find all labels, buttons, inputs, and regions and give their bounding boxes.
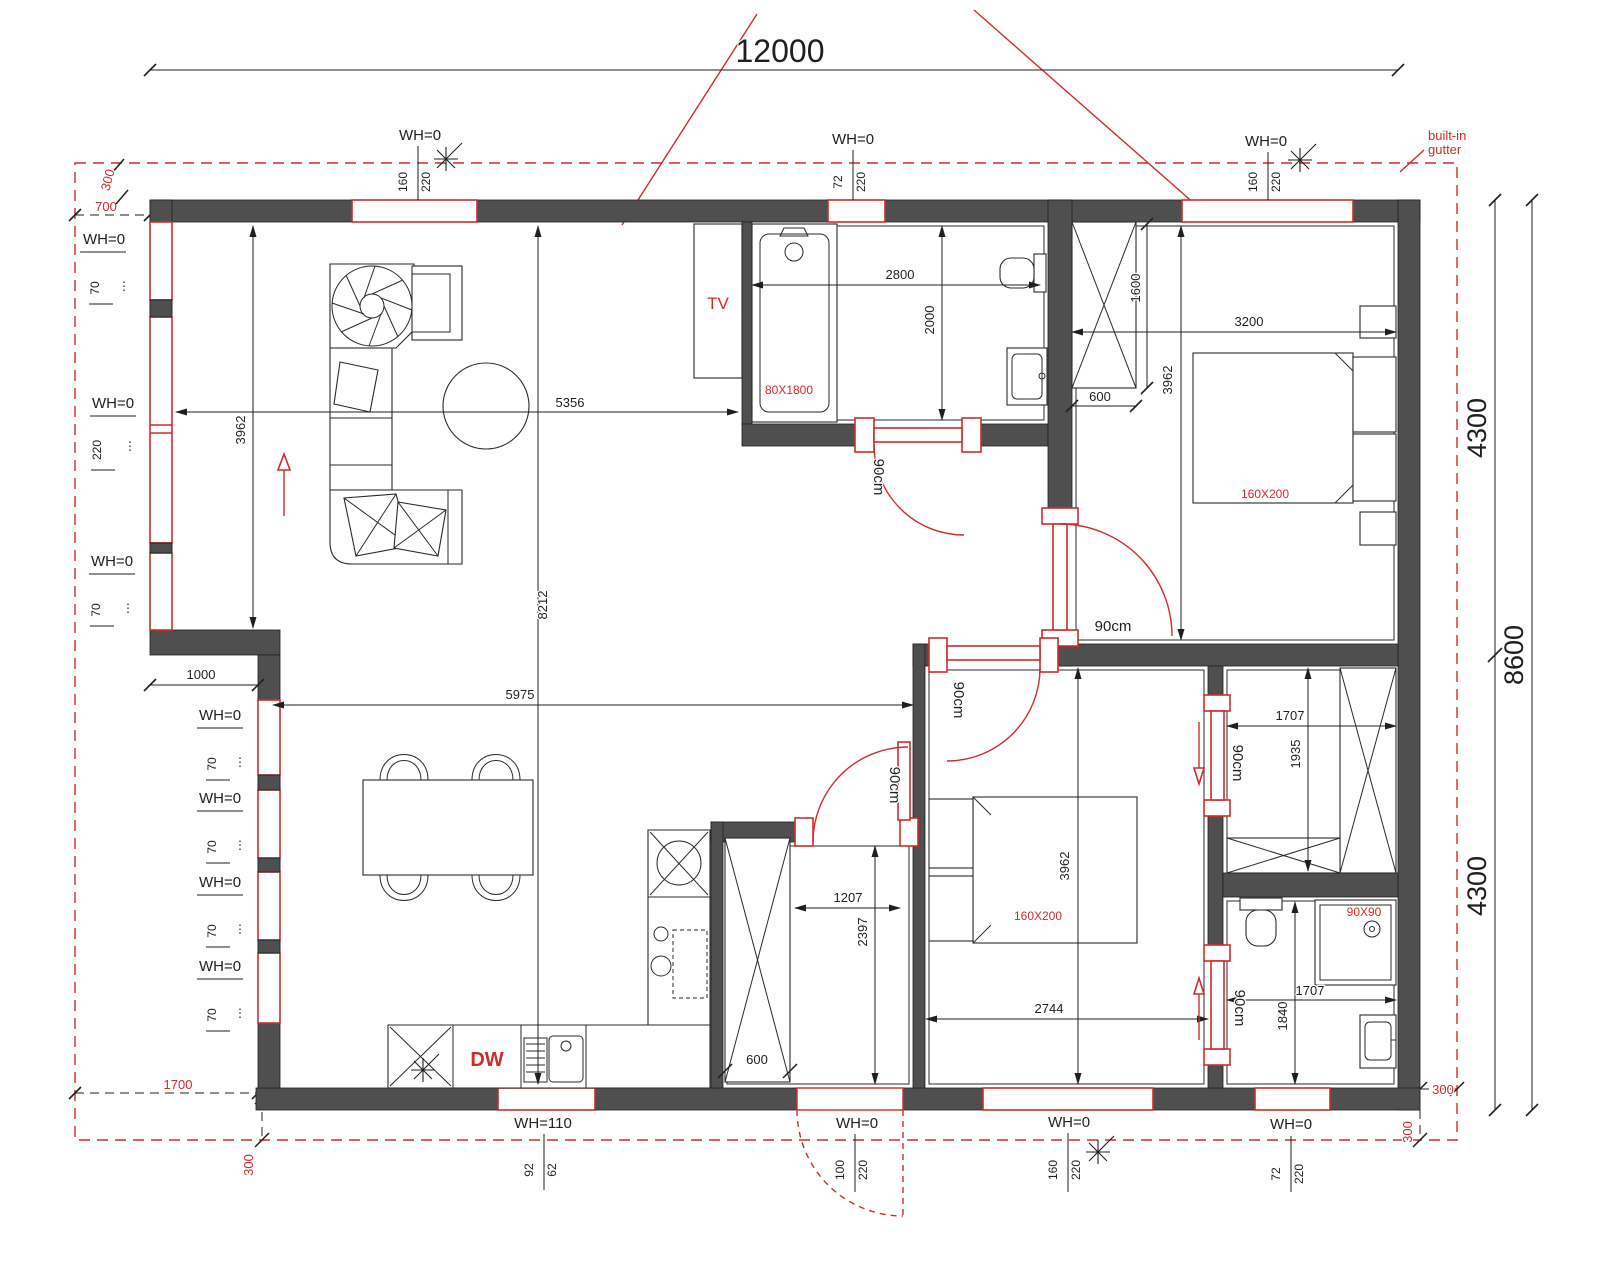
ellipsis-icon: ⋮: [234, 838, 246, 852]
window-left-u2-id: WH=0: [92, 395, 134, 412]
dishwasher-label: DW: [470, 1049, 503, 1071]
window-left-u2-size: 220: [90, 440, 104, 460]
window-bottom-3-size1: 160: [1046, 1160, 1060, 1180]
sun-icon: [1288, 144, 1316, 172]
ellipsis-icon: ⋮: [124, 439, 136, 453]
shower: 90X90: [1315, 900, 1396, 985]
dim-dining-width: 5975: [506, 687, 535, 702]
sliding-door-bathroom2-label: 90cm: [1231, 990, 1248, 1027]
bed-2: 160X200: [929, 797, 1137, 943]
window-label-left-l4: WH=0 70 ⋮: [197, 958, 246, 1031]
door-bedroom1-label: 90cm: [1095, 618, 1132, 635]
dim-bath1-height: 2000: [922, 306, 937, 335]
tv-label: TV: [707, 294, 729, 313]
dim-step-offset: 1000: [187, 667, 216, 682]
wall-sliding-seg1: [1208, 666, 1223, 695]
wall-sliding-seg3: [1208, 1063, 1223, 1088]
sofa: [330, 348, 462, 564]
window-top-1: [352, 200, 477, 222]
window-top-1-size1: 160: [396, 172, 410, 192]
window-left-l2-id: WH=0: [199, 790, 241, 807]
window-top-3-size2: 220: [1269, 172, 1283, 192]
window-left-u3-size: 70: [89, 603, 103, 617]
window-left-l1-id: WH=0: [199, 707, 241, 724]
gutter-note-line1: built-in: [1428, 128, 1466, 143]
window-label-left-l2: WH=0 70 ⋮: [197, 790, 246, 863]
toilet-2: [1240, 898, 1282, 946]
sink-1: [1007, 348, 1047, 405]
sliding-door-closet: 90cm: [1194, 695, 1246, 816]
window-left-u1-size: 70: [88, 281, 102, 295]
door-bathroom1-label: 90cm: [870, 459, 887, 496]
sliding-door-bathroom2: 90cm: [1194, 945, 1248, 1065]
sink-2: [1360, 1015, 1396, 1068]
window-left-l3-id: WH=0: [199, 874, 241, 891]
window-left-u3: [150, 553, 172, 630]
closet-wardrobes: [1227, 668, 1396, 873]
window-label-top-3: WH=0 160 220: [1245, 133, 1316, 200]
bed-1: 160X200: [1193, 306, 1396, 545]
window-bottom-1: [498, 1088, 595, 1110]
ellipsis-icon: ⋮: [118, 279, 130, 293]
window-bottom-1-size2: 62: [545, 1163, 559, 1177]
window-top-3: [1182, 200, 1353, 222]
bathtub-label: 80X1800: [765, 383, 813, 397]
window-label-bottom-4: WH=0 72 220: [1269, 1116, 1312, 1192]
door-bathroom1: 90cm: [855, 418, 981, 535]
window-bottom-2: [983, 1088, 1153, 1110]
bathtub: 80X1800: [752, 224, 837, 422]
window-bottom-2-size2: 220: [856, 1160, 870, 1180]
ellipsis-icon: ⋮: [234, 922, 246, 936]
ellipsis-icon: ⋮: [122, 601, 134, 615]
spiral-stair: [330, 264, 414, 348]
entry-door: [797, 1088, 903, 1216]
wall-step: [150, 630, 280, 655]
sun-icon: [434, 143, 462, 171]
round-table: [443, 363, 529, 449]
gutter-leader-tick: [1400, 150, 1424, 172]
dim-bath1-width: 2800: [886, 267, 915, 282]
wall-bath1-bottom-right: [979, 424, 1048, 446]
wall-bath1-bottom-left: [742, 424, 855, 446]
window-left-l3: [258, 872, 280, 940]
dim-roof-offset-bottom-left: 1700: [164, 1077, 193, 1092]
window-left-l2: [258, 790, 280, 858]
dim-interior-height: 8212: [535, 591, 550, 620]
window-top-3-size1: 160: [1246, 172, 1260, 192]
floor-plan-page: built-in gutter 12000 4300 4300 8600 700…: [0, 0, 1600, 1280]
dining-set: [363, 755, 533, 901]
dim-closet-width: 1707: [1276, 708, 1305, 723]
window-left-l1: [258, 700, 280, 775]
window-top-1-size2: 220: [419, 172, 433, 192]
wall-closet-bath2-divider: [1223, 873, 1398, 897]
dim-right-lower: 4300: [1462, 856, 1492, 916]
window-label-left-u3: WH=0 70 ⋮: [89, 553, 135, 626]
dim-hall-width: 1207: [834, 890, 863, 905]
dim-overall-width: 12000: [736, 33, 825, 69]
dim-bed1-room-height: 3962: [1160, 366, 1175, 395]
tv-unit: TV: [694, 224, 742, 378]
door-hall-label: 90cm: [886, 767, 903, 804]
dim-hall-cabinet-depth: 600: [746, 1052, 768, 1067]
window-left-u1-id: WH=0: [83, 231, 125, 248]
window-bottom-3-id: WH=0: [1048, 1114, 1090, 1131]
gutter-note-line2: gutter: [1428, 142, 1462, 157]
dim-living-width: 5356: [556, 395, 585, 410]
entry-direction-arrow: [278, 454, 290, 516]
bed1-label: 160X200: [1241, 487, 1289, 501]
window-label-left-u2: WH=0 220 ⋮: [90, 395, 136, 470]
shower-label: 90X90: [1347, 905, 1382, 919]
window-label-left-l1: WH=0 70 ⋮: [197, 707, 246, 780]
door-bedroom2: 90cm: [929, 638, 1058, 761]
window-left-l3-size: 70: [205, 924, 219, 938]
dim-roof-offset-left: 700: [95, 199, 117, 214]
dim-roof-offset-bl-v: 300: [241, 1154, 256, 1176]
window-label-top-2: WH=0 72 220: [831, 131, 874, 200]
wall-bedroom2-left: [913, 644, 925, 1088]
window-left-u2: [150, 317, 172, 543]
window-bottom-1-size1: 92: [522, 1163, 536, 1177]
ellipsis-icon: ⋮: [234, 755, 246, 769]
window-label-bottom-3: WH=0 160 220: [1046, 1114, 1114, 1192]
bed2-label: 160X200: [1014, 909, 1062, 923]
window-left-l1-size: 70: [205, 757, 219, 771]
window-top-2: [828, 200, 885, 222]
dim-bed2-width: 2744: [1035, 1001, 1064, 1016]
window-left-l2-size: 70: [205, 840, 219, 854]
window-bottom-3: [1255, 1088, 1330, 1110]
window-left-l4-id: WH=0: [199, 958, 241, 975]
dim-wardrobe1-depth: 600: [1089, 389, 1111, 404]
window-left-l4: [258, 953, 280, 1023]
window-label-left-u1: WH=0 70 ⋮: [80, 231, 130, 304]
dim-living-height: 3962: [233, 416, 248, 445]
window-label-bottom-1: WH=110 92 62: [514, 1115, 572, 1190]
dim-closet-height: 1935: [1288, 740, 1303, 769]
door-bedroom2-label: 90cm: [950, 682, 967, 719]
dim-hall-height: 2397: [855, 918, 870, 947]
wall-right: [1398, 200, 1420, 1110]
window-top-2-size1: 72: [831, 175, 845, 189]
window-label-bottom-2: WH=0 100 220: [833, 1115, 878, 1192]
toilet-1: [1000, 254, 1046, 292]
window-bottom-4-size1: 72: [1269, 1167, 1283, 1181]
door-bedroom1: 90cm: [1042, 508, 1172, 646]
dim-roof-offset-br-h: 300: [1432, 1082, 1454, 1097]
nightstand: [1360, 512, 1396, 545]
door-hall: 90cm: [795, 742, 918, 846]
armchair: [412, 266, 462, 340]
window-top-2-size2: 220: [854, 172, 868, 192]
dim-wardrobe1-height: 1600: [1128, 274, 1143, 303]
sliding-door-closet-label: 90cm: [1229, 745, 1246, 782]
window-top-2-id: WH=0: [832, 131, 874, 148]
window-top-1-id: WH=0: [399, 127, 441, 144]
window-bottom-2-id: WH=0: [836, 1115, 878, 1132]
roof-slope-line-right: [974, 10, 1196, 205]
floor-plan-drawing: built-in gutter 12000 4300 4300 8600 700…: [0, 0, 1600, 1280]
dim-bed2-room-height: 3962: [1057, 852, 1072, 881]
nightstand: [1360, 306, 1396, 338]
dim-bath2-width: 1707: [1296, 983, 1325, 998]
window-top-3-id: WH=0: [1245, 133, 1287, 150]
wardrobe-1: [1072, 222, 1136, 388]
dim-bed1-width: 3200: [1235, 314, 1264, 329]
window-bottom-4-id: WH=0: [1270, 1116, 1312, 1133]
dim-roof-offset-top: 300: [98, 167, 118, 192]
window-bottom-4-size2: 220: [1292, 1164, 1306, 1184]
window-left-u1: [150, 222, 172, 300]
window-left-u3-id: WH=0: [91, 553, 133, 570]
wall-sliding-seg2: [1208, 815, 1223, 947]
window-bottom-1-id: WH=110: [514, 1115, 572, 1132]
window-label-left-l3: WH=0 70 ⋮: [197, 874, 246, 947]
ellipsis-icon: ⋮: [234, 1006, 246, 1020]
wall-bath1-left: [742, 222, 752, 424]
window-bottom-3-size2: 220: [1069, 1160, 1083, 1180]
wall-kitchen-divider: [711, 822, 723, 1088]
window-left-l4-size: 70: [205, 1008, 219, 1022]
dim-bath2-height: 1840: [1275, 1002, 1290, 1031]
wall-bedroom1-left-upper: [1048, 200, 1072, 514]
window-bottom-2-size1: 100: [833, 1160, 847, 1180]
dim-right-upper: 4300: [1462, 398, 1492, 458]
dim-roof-offset-br-v: 300: [1400, 1121, 1415, 1143]
dim-right-total: 8600: [1499, 625, 1529, 685]
wall-mid-right: [1040, 644, 1398, 666]
hall-cabinet: [725, 838, 790, 1082]
